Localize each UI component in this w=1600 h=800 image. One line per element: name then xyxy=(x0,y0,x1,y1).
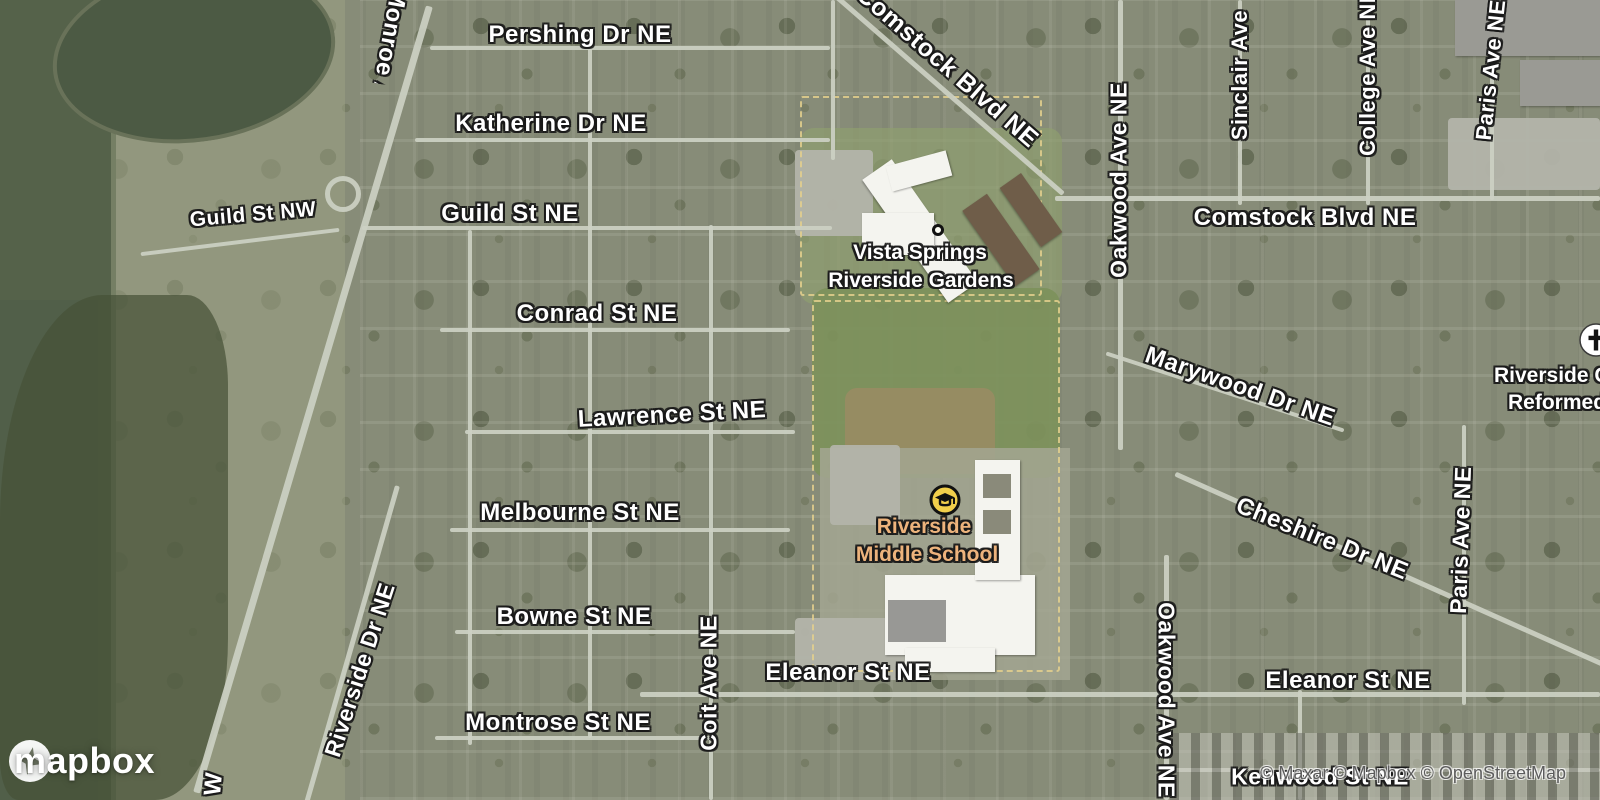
road xyxy=(640,692,1600,697)
poi-label-vista-springs-line1: Vista Springs xyxy=(853,241,987,265)
church-building xyxy=(1520,60,1600,106)
poi-label-vista-springs-line2: Riverside Gardens xyxy=(828,269,1014,293)
church-marker-icon[interactable] xyxy=(1578,322,1600,358)
street-label-guild-st-ne: Guild St NE xyxy=(441,200,579,228)
satellite-map-canvas[interactable]: Pershing Dr NE Katherine Dr NE Guild St … xyxy=(0,0,1600,800)
school-courtyard xyxy=(983,510,1011,534)
poi-label-church-line1: Riverside C xyxy=(1494,364,1600,388)
street-label-eleanor-st-ne-west: Eleanor St NE xyxy=(765,659,930,687)
riverbank-forest xyxy=(0,295,228,800)
street-label-college-ave-ne: College Ave NE xyxy=(1355,0,1381,156)
school-courtyard xyxy=(983,474,1011,498)
street-label-katherine-dr-ne: Katherine Dr NE xyxy=(455,110,647,138)
street-label-oakwood-ave-ne-north: Oakwood Ave NE xyxy=(1106,82,1133,278)
roundabout xyxy=(325,176,361,212)
attribution[interactable]: © Maxar © Mapbox © OpenStreetMap xyxy=(1260,763,1566,784)
vista-springs-marker[interactable] xyxy=(932,224,944,236)
street-label-comstock-blvd-ne-east: Comstock Blvd NE xyxy=(1194,204,1417,232)
mapbox-wordmark: mapbox xyxy=(14,740,155,782)
road xyxy=(362,226,832,230)
street-label-montrose-st-ne: Montrose St NE xyxy=(465,709,651,737)
mapbox-logo[interactable]: mapbox xyxy=(8,736,308,786)
street-label-pershing-dr-ne: Pershing Dr NE xyxy=(488,21,671,49)
school-marker-icon[interactable] xyxy=(929,484,961,516)
school-dark-roof xyxy=(888,600,946,642)
road xyxy=(415,138,830,142)
road xyxy=(440,328,790,332)
poi-label-church-line2: Reformed xyxy=(1508,391,1600,415)
road xyxy=(1055,196,1600,201)
street-label-bowne-st-ne: Bowne St NE xyxy=(497,603,652,631)
road xyxy=(468,230,472,745)
road xyxy=(450,528,790,532)
street-label-sinclair-ave: Sinclair Ave xyxy=(1227,10,1253,140)
street-label-conrad-st-ne: Conrad St NE xyxy=(517,300,678,328)
road xyxy=(831,0,835,160)
church-building xyxy=(1455,0,1600,56)
street-label-paris-ave-ne-south: Paris Ave NE xyxy=(1445,466,1477,614)
poi-label-school-line1: Riverside xyxy=(877,515,972,539)
street-label-coit-ave-ne: Coit Ave NE xyxy=(696,615,723,750)
street-label-oakwood-ave-ne-south: Oakwood Ave NE xyxy=(1153,602,1180,798)
street-label-melbourne-st-ne: Melbourne St NE xyxy=(480,499,680,527)
poi-label-school-line2: Middle School xyxy=(856,543,998,567)
street-label-eleanor-st-ne-east: Eleanor St NE xyxy=(1265,667,1430,695)
road xyxy=(588,48,592,738)
